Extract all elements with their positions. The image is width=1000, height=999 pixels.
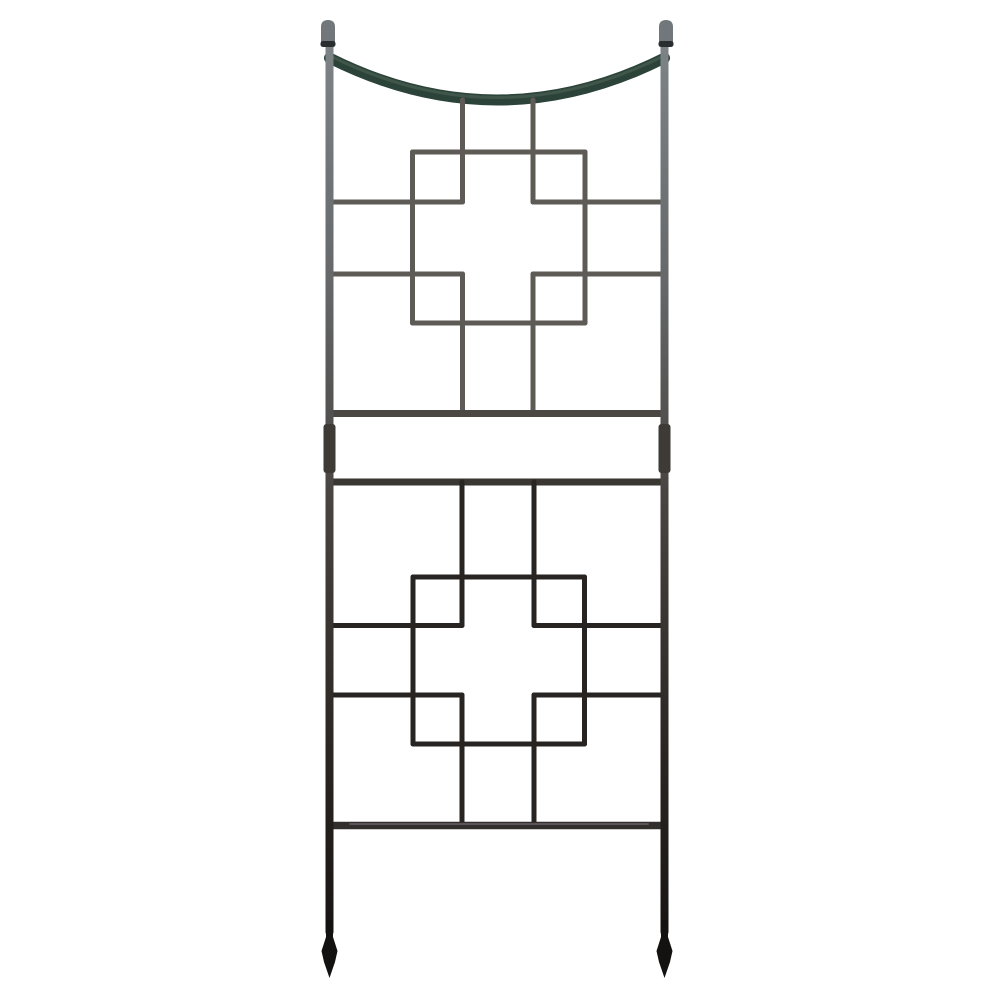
top-swag-arc	[330, 58, 665, 100]
right-foot	[657, 920, 673, 978]
product-photo-background	[0, 0, 1000, 999]
top-swag-arc-highlight	[330, 56, 665, 98]
left-foot	[322, 920, 338, 978]
left-post-coupler	[324, 424, 336, 473]
product-photo	[0, 0, 1000, 999]
finial-collar-right	[659, 41, 674, 47]
finial-collar-left	[321, 41, 336, 47]
trellis-image	[0, 0, 1000, 999]
finial-cap-left	[321, 20, 335, 43]
finial-cap-right	[659, 20, 673, 43]
right-post-coupler	[659, 424, 671, 473]
